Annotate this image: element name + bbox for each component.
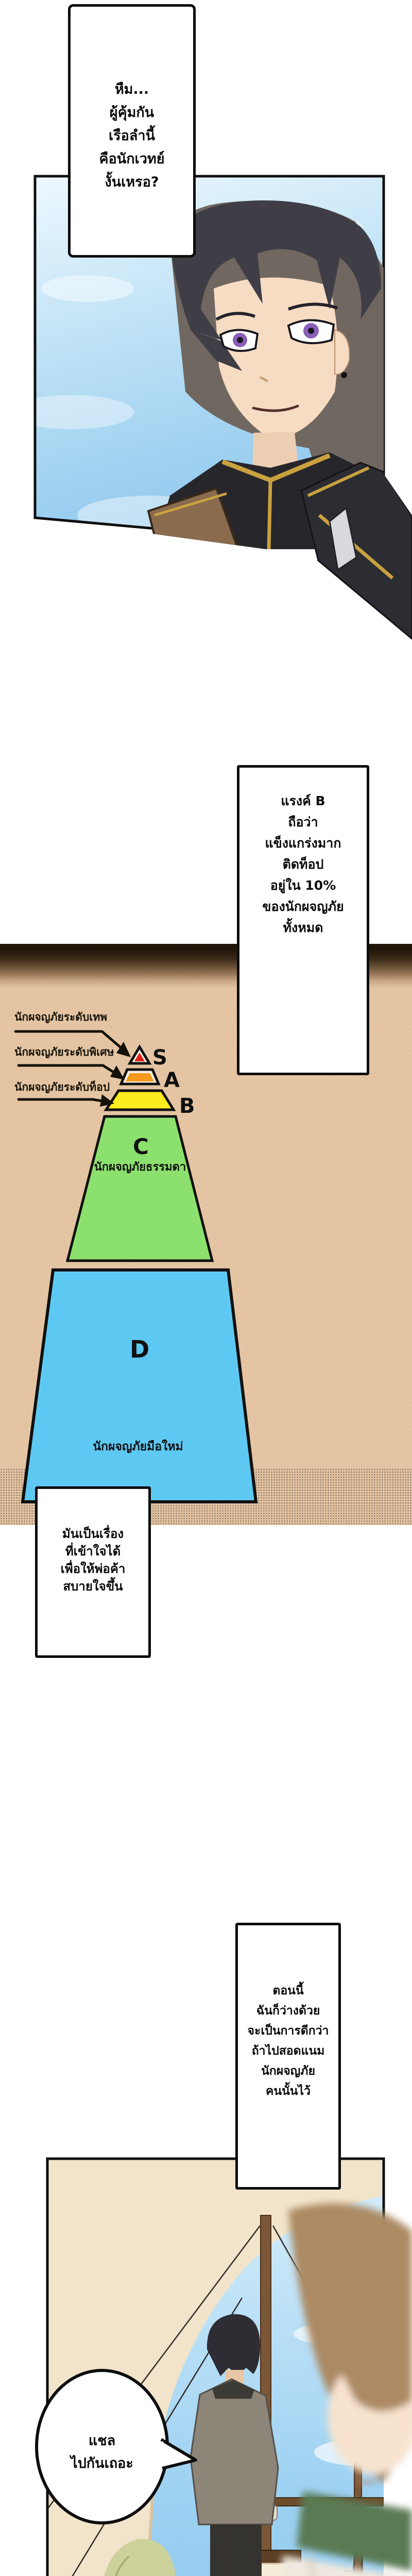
- narration-box: มันเป็นเรื่อง ที่เข้าใจได้ เพื่อให้พ่อค้…: [35, 1486, 151, 1658]
- tier-D-label: นักผจญภัยมือใหม่: [93, 1439, 183, 1453]
- rank-letter-A: A: [164, 1069, 180, 1092]
- speech-line: ถ้าไปสอดแนม: [238, 2041, 338, 2061]
- speech-line: แชล: [38, 2430, 166, 2452]
- rank-letter-D: D: [130, 1335, 149, 1363]
- tier-D: [23, 1270, 256, 1502]
- tier-A: [126, 1073, 154, 1081]
- eye-left: [220, 330, 257, 351]
- callout-special-tier: นักผจญภัยระดับพิเศษ: [14, 1044, 114, 1061]
- speech-line: ไปกันเถอะ: [38, 2452, 166, 2475]
- shoulder-armor: [301, 463, 412, 639]
- speech-line: ฉันก็ว่างด้วย: [238, 2001, 338, 2021]
- speech-line: แข็งแกร่งมาก: [239, 833, 367, 854]
- speech-line: ของนักผจญภัย: [239, 896, 367, 917]
- tier-C-label: นักผจญภัยธรรมดา: [94, 1161, 186, 1174]
- rank-letter-S: S: [152, 1046, 167, 1070]
- speech-line: ถือว่า: [239, 811, 367, 833]
- speech-line: มันเป็นเรื่อง: [38, 1525, 148, 1543]
- panel-mage-closeup: [0, 155, 412, 659]
- earring: [341, 372, 347, 378]
- eye-right: [288, 320, 334, 343]
- speech-line: คนนั้นไว้: [238, 2081, 338, 2102]
- speech-line: ตอนนี้: [238, 1981, 338, 2001]
- speech-bubble-4: ตอนนี้ ฉันก็ว่างด้วย จะเป็นการดีกว่า ถ้า…: [235, 1923, 341, 2190]
- panel-ship-deck: [0, 2138, 412, 2576]
- speech-line: ติดท็อป: [239, 854, 367, 875]
- speech-line: อยู่ใน 10%: [239, 875, 367, 896]
- speech-line: ที่เข้าใจได้: [38, 1543, 148, 1560]
- speech-line: จะเป็นการดีกว่า: [238, 2021, 338, 2041]
- rank-letter-C: C: [133, 1134, 149, 1159]
- speech-line: ทั้งหมด: [239, 917, 367, 938]
- comic-page: หืม... ผู้คุ้มกัน เรือลำนี้ คือนักเวทย์ …: [0, 0, 412, 2576]
- tier-B: [106, 1091, 174, 1110]
- speech-line: นักผจญภัย: [238, 2061, 338, 2081]
- speech-line: เพื่อให้พ่อค้า: [38, 1560, 148, 1578]
- speech-line: เรือลำนี้: [71, 124, 193, 147]
- speech-line: งั้นเหรอ?: [71, 171, 193, 194]
- callout-god-tier: นักผจญภัยระดับเทพ: [14, 1009, 107, 1026]
- speech-line: ผู้คุ้มกัน: [71, 101, 193, 124]
- speech-tail: [157, 2434, 201, 2473]
- speech-line: คือนักเวทย์: [71, 147, 193, 171]
- speech-line: สบายใจขึ้น: [38, 1578, 148, 1595]
- speech-line: แรงค์ B: [239, 790, 367, 811]
- speech-bubble-2: แรงค์ B ถือว่า แข็งแกร่งมาก ติดท็อป อยู่…: [237, 765, 369, 1075]
- callout-top-tier: นักผจญภัยระดับท็อป: [14, 1079, 110, 1096]
- speech-line: หืม...: [71, 78, 193, 101]
- speech-bubble-5: แชล ไปกันเถอะ: [35, 2369, 169, 2524]
- rank-letter-B: B: [179, 1094, 195, 1118]
- speech-bubble-1: หืม... ผู้คุ้มกัน เรือลำนี้ คือนักเวทย์ …: [68, 4, 196, 258]
